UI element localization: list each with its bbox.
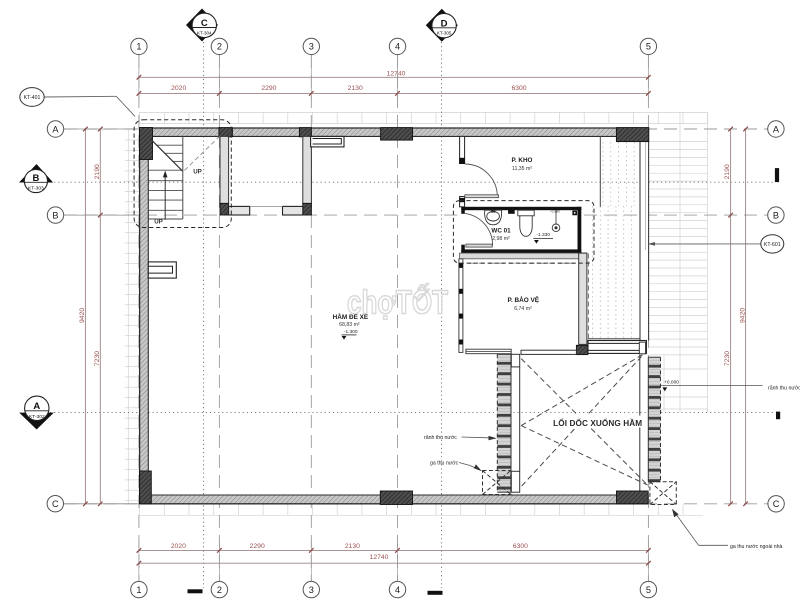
svg-text:7230: 7230 [94,351,101,366]
svg-text:+2.860: +2.860 [550,210,560,214]
svg-text:KT-304: KT-304 [197,30,212,35]
svg-text:P. KHO: P. KHO [512,157,533,164]
svg-text:KT-305: KT-305 [437,31,452,36]
svg-text:A: A [33,401,40,412]
svg-text:ga thu nước: ga thu nước [430,460,459,466]
svg-text:1: 1 [136,42,141,52]
svg-text:B: B [52,210,58,220]
svg-text:rãnh thu nước: rãnh thu nước [424,435,457,441]
svg-text:5: 5 [646,42,651,52]
svg-text:4: 4 [395,42,400,52]
svg-text:P. BẢO VỆ: P. BẢO VỆ [508,295,540,304]
svg-text:6300: 6300 [511,85,526,92]
svg-text:WC 01: WC 01 [491,228,511,235]
svg-text:12740: 12740 [370,554,389,561]
svg-text:UP: UP [154,218,163,225]
svg-text:B: B [32,173,39,184]
svg-text:A: A [52,124,59,134]
svg-text:12740: 12740 [387,71,406,78]
svg-text:-1.300: -1.300 [344,329,358,335]
svg-text:2190: 2190 [94,164,101,179]
svg-text:chợTỐT: chợTỐT [347,283,448,321]
svg-text:9420: 9420 [79,308,86,323]
svg-text:+0.000: +0.000 [664,380,679,386]
svg-text:2: 2 [217,585,222,595]
svg-text:6300: 6300 [513,543,528,550]
svg-text:2020: 2020 [171,85,186,92]
svg-text:4: 4 [395,585,400,595]
svg-text:C: C [52,499,59,509]
svg-text:3: 3 [309,42,314,52]
svg-text:2290: 2290 [250,543,265,550]
svg-text:2290: 2290 [261,85,276,92]
svg-text:68,83 m²: 68,83 m² [339,322,360,328]
svg-text:2: 2 [217,42,222,52]
svg-text:2,98 m²: 2,98 m² [492,236,510,242]
svg-text:2130: 2130 [348,85,363,92]
svg-text:6,74 m²: 6,74 m² [514,306,532,312]
svg-text:LỐI DỐC XUỐNG HẦM: LỐI DỐC XUỐNG HẦM [553,417,642,428]
svg-text:rãnh thu nước: rãnh thu nước [768,386,800,392]
svg-text:2190: 2190 [724,164,731,179]
svg-text:C: C [773,499,780,509]
svg-text:KT-303: KT-303 [28,186,44,192]
svg-text:-1.330: -1.330 [536,232,550,238]
svg-text:ga thu nước ngoài nhà: ga thu nước ngoài nhà [730,544,783,550]
svg-text:KT-302: KT-302 [29,414,45,420]
svg-text:2020: 2020 [171,543,186,550]
svg-text:A: A [773,124,780,134]
svg-text:7230: 7230 [724,351,731,366]
svg-text:3: 3 [309,585,314,595]
svg-text:1: 1 [136,585,141,595]
svg-text:C: C [201,18,208,29]
svg-text:9420: 9420 [740,308,747,323]
svg-text:UP: UP [193,168,202,175]
svg-text:B: B [773,210,779,220]
svg-text:5: 5 [646,585,651,595]
svg-text:KT-401: KT-401 [24,95,41,101]
svg-text:D: D [441,19,448,30]
svg-text:11,35 m²: 11,35 m² [512,166,532,172]
svg-text:2130: 2130 [345,543,360,550]
svg-text:KT-601: KT-601 [764,242,781,248]
